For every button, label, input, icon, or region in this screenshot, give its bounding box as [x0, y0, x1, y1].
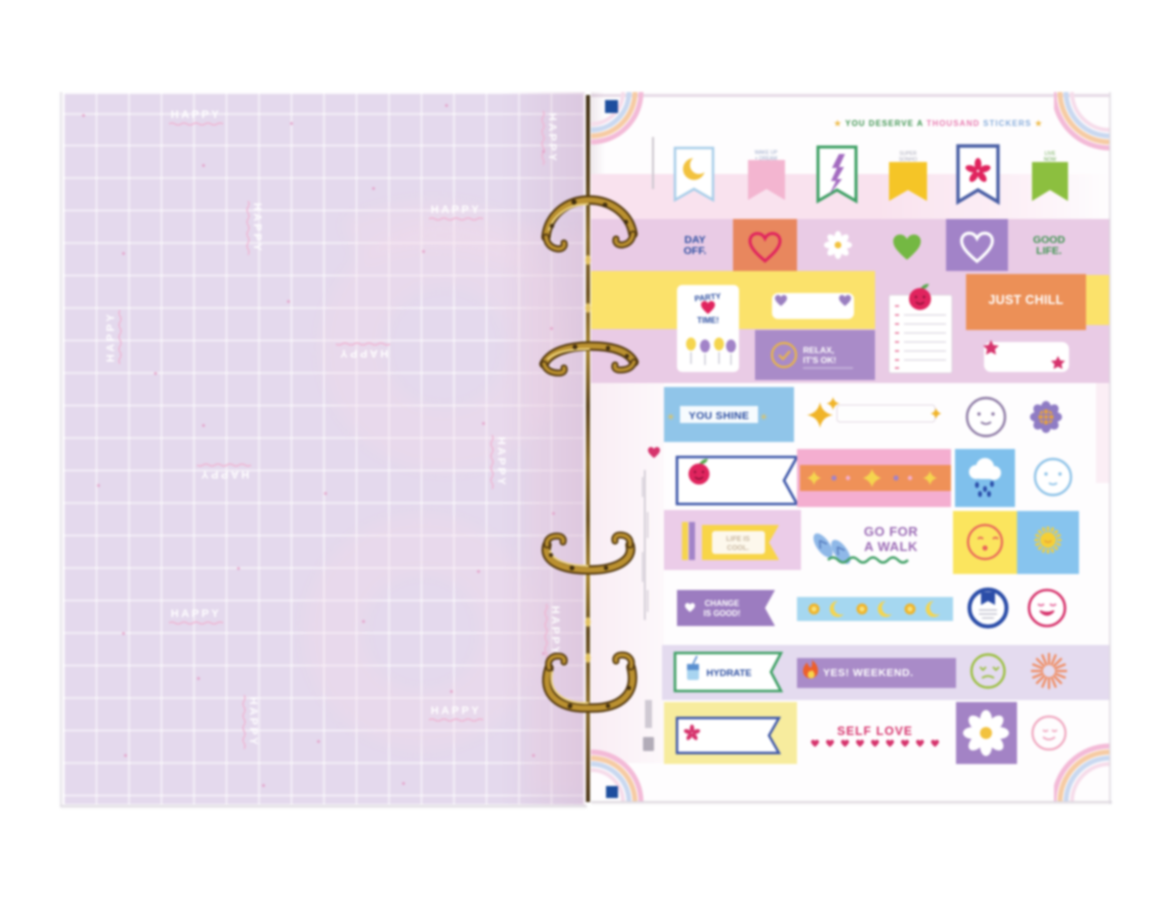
svg-text:CHANGE: CHANGE [705, 599, 740, 608]
svg-text:HYDRATE: HYDRATE [706, 668, 751, 679]
svg-text:A WALK: A WALK [864, 539, 918, 554]
svg-text:LIFE.: LIFE. [1036, 245, 1062, 257]
svg-text:YOU SHINE: YOU SHINE [689, 410, 749, 422]
svg-text:TIME!: TIME! [697, 316, 719, 325]
svg-text:SELF LOVE: SELF LOVE [837, 724, 913, 738]
svg-text:LIFE IS: LIFE IS [726, 536, 750, 543]
svg-text:OFF.: OFF. [684, 245, 707, 257]
svg-text:RELAX,: RELAX, [803, 345, 834, 355]
svg-text:✳: ✳ [667, 412, 675, 422]
svg-text:JUST CHILL: JUST CHILL [988, 293, 1063, 307]
svg-text:IS GOOD!: IS GOOD! [704, 609, 741, 618]
svg-text:IT'S OK!: IT'S OK! [803, 355, 836, 365]
svg-text:GO FOR: GO FOR [864, 524, 918, 539]
svg-text:✳: ✳ [760, 412, 768, 422]
svg-text:COOL.: COOL. [727, 545, 749, 552]
svg-text:YES! WEEKEND.: YES! WEEKEND. [823, 667, 914, 679]
